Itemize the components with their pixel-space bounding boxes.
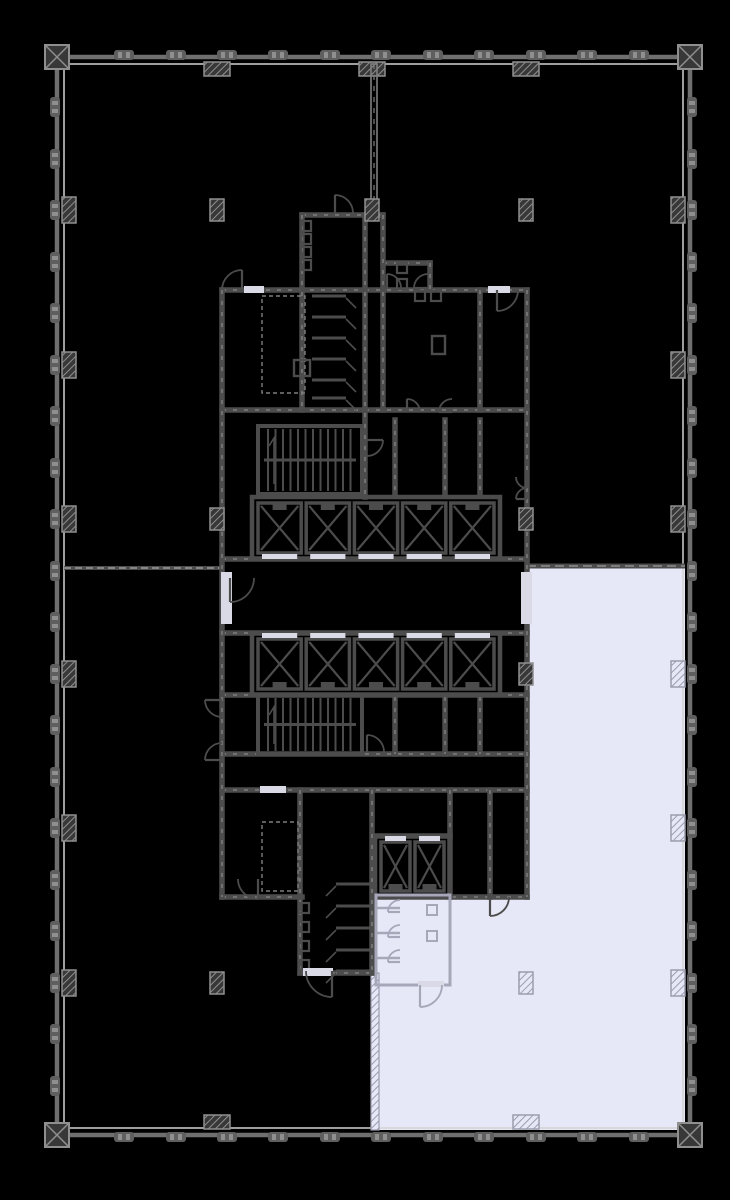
floor-plan-viewport <box>0 0 730 1200</box>
floor-plan-svg <box>0 0 730 1200</box>
